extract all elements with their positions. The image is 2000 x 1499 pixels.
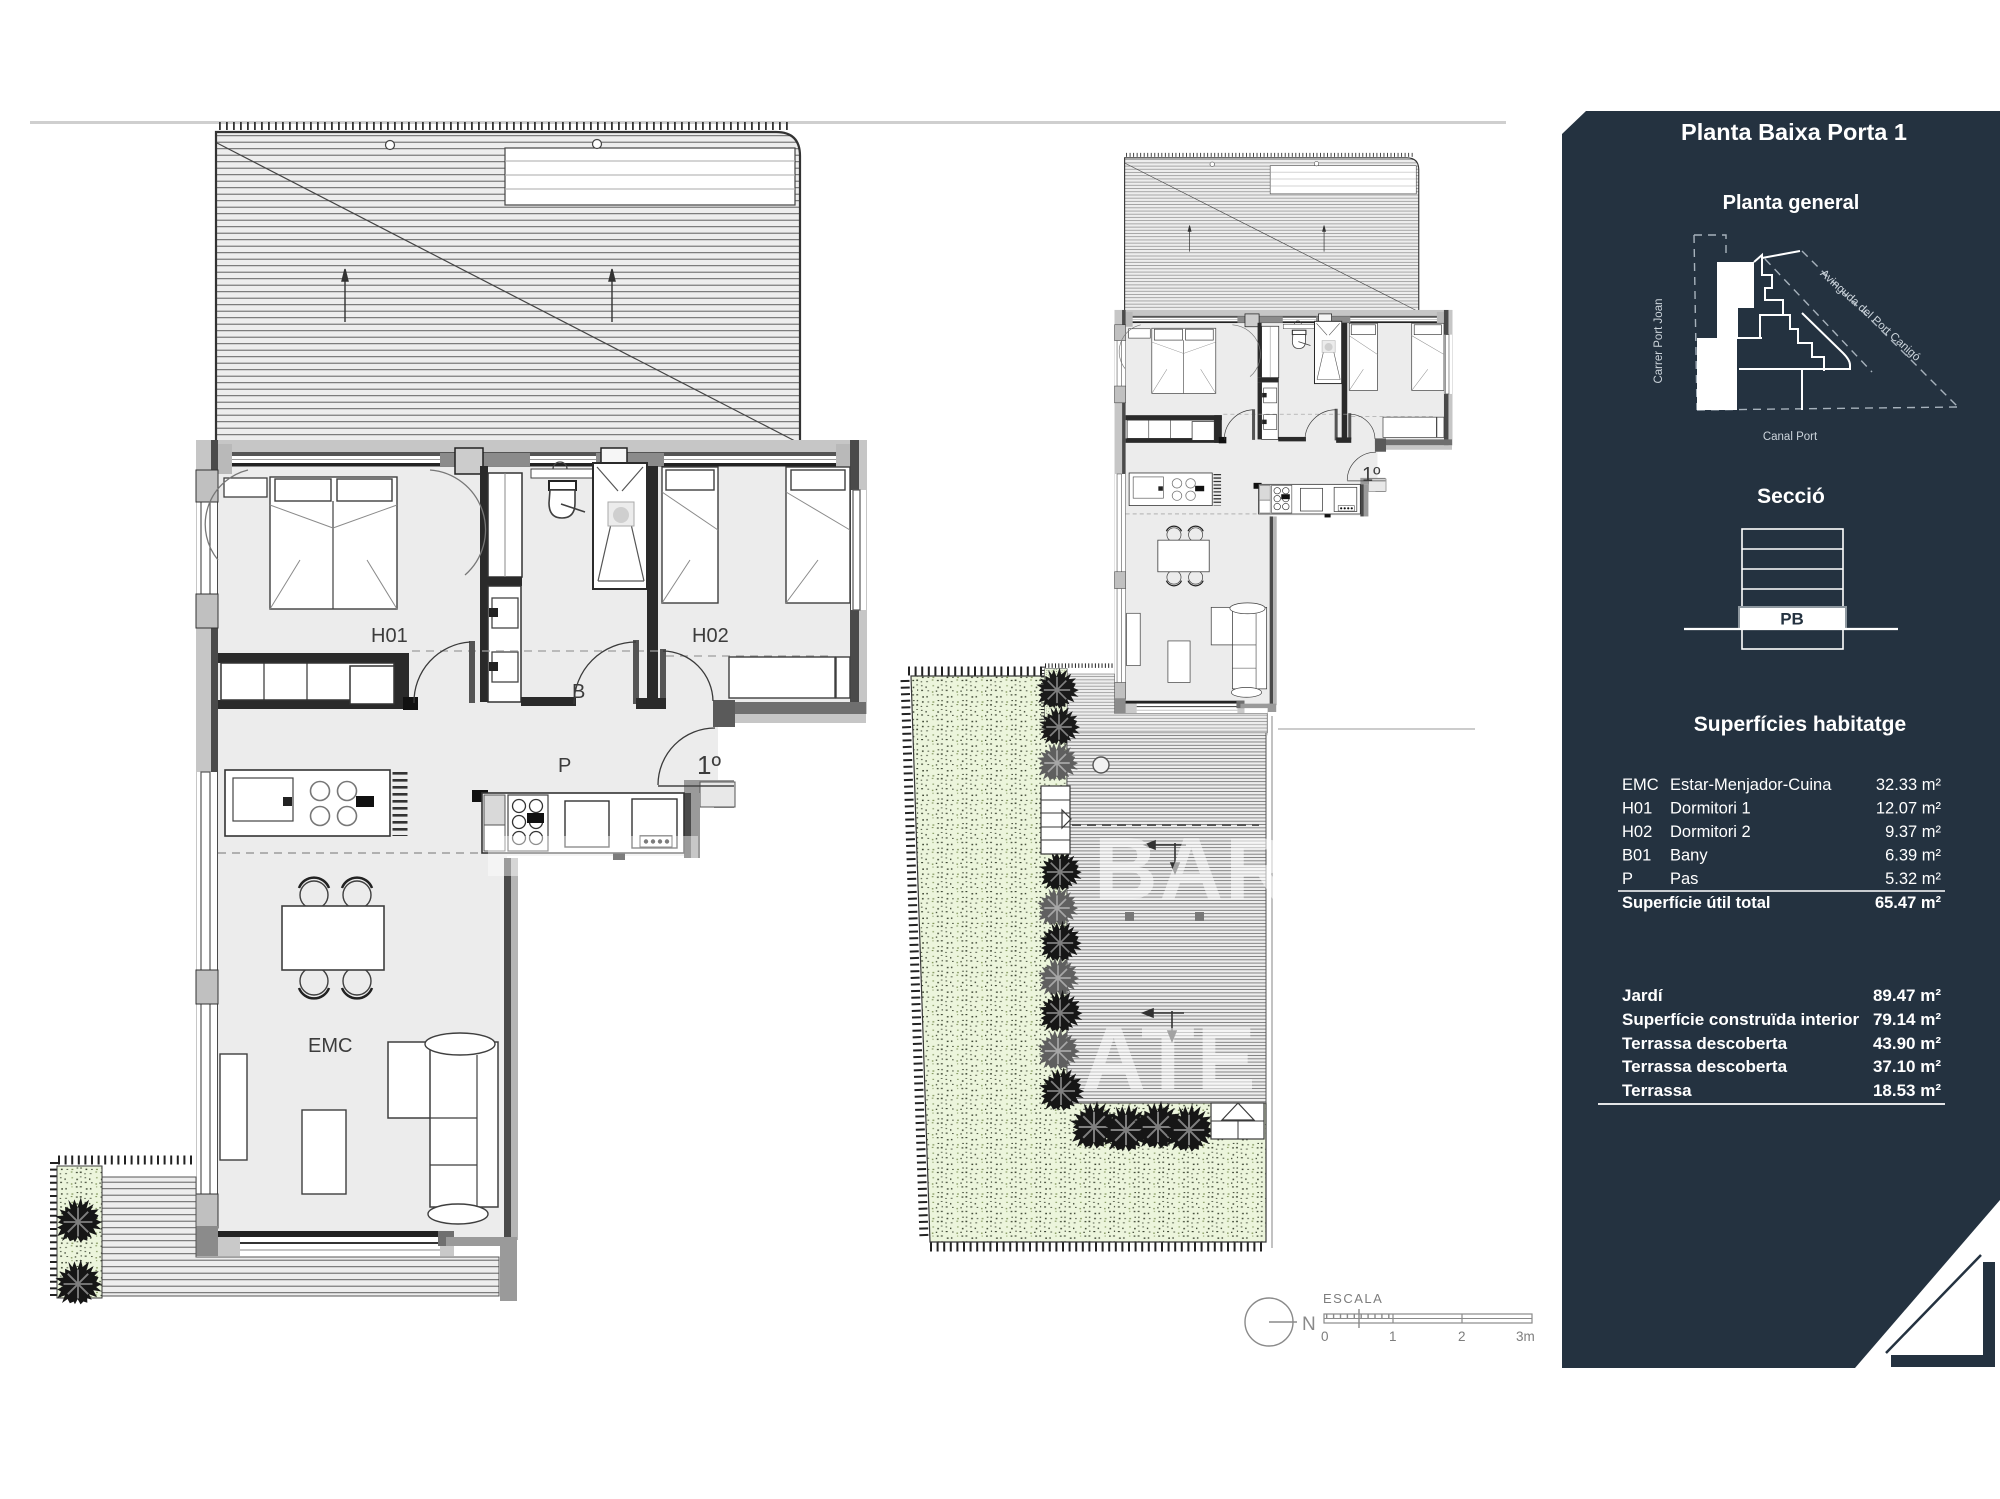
svg-text:Superfície útil total: Superfície útil total xyxy=(1622,894,1771,912)
svg-text:32.33 m²: 32.33 m² xyxy=(1876,776,1942,794)
svg-text:Secció: Secció xyxy=(1757,485,1825,508)
svg-text:1º: 1º xyxy=(1362,464,1381,486)
svg-text:B01: B01 xyxy=(1622,847,1651,865)
svg-text:Superfície construïda interior: Superfície construïda interior xyxy=(1622,1010,1859,1029)
svg-text:37.10 m²: 37.10 m² xyxy=(1873,1057,1941,1076)
svg-text:Planta general: Planta general xyxy=(1723,192,1860,214)
svg-text:65.47 m²: 65.47 m² xyxy=(1875,894,1942,912)
svg-text:Jardí: Jardí xyxy=(1622,986,1664,1005)
svg-text:Pas: Pas xyxy=(1670,870,1698,888)
svg-text:ESCALA: ESCALA xyxy=(1323,1291,1383,1306)
svg-text:Terrassa descoberta: Terrassa descoberta xyxy=(1622,1057,1788,1076)
svg-text:PB: PB xyxy=(1780,610,1804,629)
svg-text:5.32 m²: 5.32 m² xyxy=(1885,870,1941,888)
svg-text:0: 0 xyxy=(1321,1329,1329,1344)
svg-text:Terrassa: Terrassa xyxy=(1622,1081,1692,1100)
svg-text:9.37 m²: 9.37 m² xyxy=(1885,823,1941,841)
svg-text:1º: 1º xyxy=(697,750,721,780)
svg-text:Carrer Port Joan: Carrer Port Joan xyxy=(1653,298,1665,383)
svg-text:18.53 m²: 18.53 m² xyxy=(1873,1081,1941,1100)
svg-text:P: P xyxy=(558,755,571,777)
svg-text:Canal Port: Canal Port xyxy=(1763,431,1818,443)
svg-text:P: P xyxy=(1622,870,1633,888)
svg-text:1: 1 xyxy=(1389,1329,1397,1344)
svg-text:H01: H01 xyxy=(1622,800,1652,818)
svg-text:79.14 m²: 79.14 m² xyxy=(1873,1010,1941,1029)
svg-text:Dormitori 1: Dormitori 1 xyxy=(1670,800,1751,818)
svg-text:3m: 3m xyxy=(1516,1329,1535,1344)
svg-text:12.07 m²: 12.07 m² xyxy=(1876,800,1942,818)
svg-text:2: 2 xyxy=(1458,1329,1466,1344)
svg-text:Estar-Menjador-Cuina: Estar-Menjador-Cuina xyxy=(1670,776,1832,794)
svg-text:N: N xyxy=(1302,1314,1316,1335)
svg-text:H01: H01 xyxy=(371,625,408,647)
svg-text:Bany: Bany xyxy=(1670,847,1708,865)
svg-text:ATE: ATE xyxy=(1082,1009,1257,1108)
svg-text:EMC: EMC xyxy=(308,1035,352,1057)
svg-text:Dormitori 2: Dormitori 2 xyxy=(1670,823,1751,841)
svg-text:H02: H02 xyxy=(692,625,729,647)
svg-text:BAR: BAR xyxy=(1094,819,1291,918)
svg-text:Terrassa descoberta: Terrassa descoberta xyxy=(1622,1034,1788,1053)
svg-text:6.39 m²: 6.39 m² xyxy=(1885,847,1941,865)
svg-text:43.90 m²: 43.90 m² xyxy=(1873,1034,1941,1053)
svg-text:89.47 m²: 89.47 m² xyxy=(1873,986,1941,1005)
svg-text:H02: H02 xyxy=(1622,823,1652,841)
svg-text:B: B xyxy=(572,681,585,703)
svg-text:EMC: EMC xyxy=(1622,776,1659,794)
svg-text:Superfícies habitatge: Superfícies habitatge xyxy=(1694,713,1906,736)
svg-text:Planta Baixa Porta 1: Planta Baixa Porta 1 xyxy=(1681,119,1907,145)
